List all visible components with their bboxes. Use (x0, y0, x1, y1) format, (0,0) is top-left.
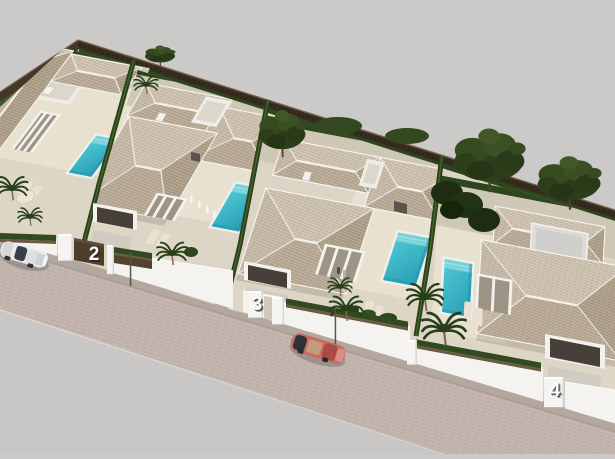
svg-text:4: 4 (550, 380, 561, 401)
svg-text:3: 3 (252, 294, 263, 315)
svg-text:2: 2 (89, 244, 100, 265)
